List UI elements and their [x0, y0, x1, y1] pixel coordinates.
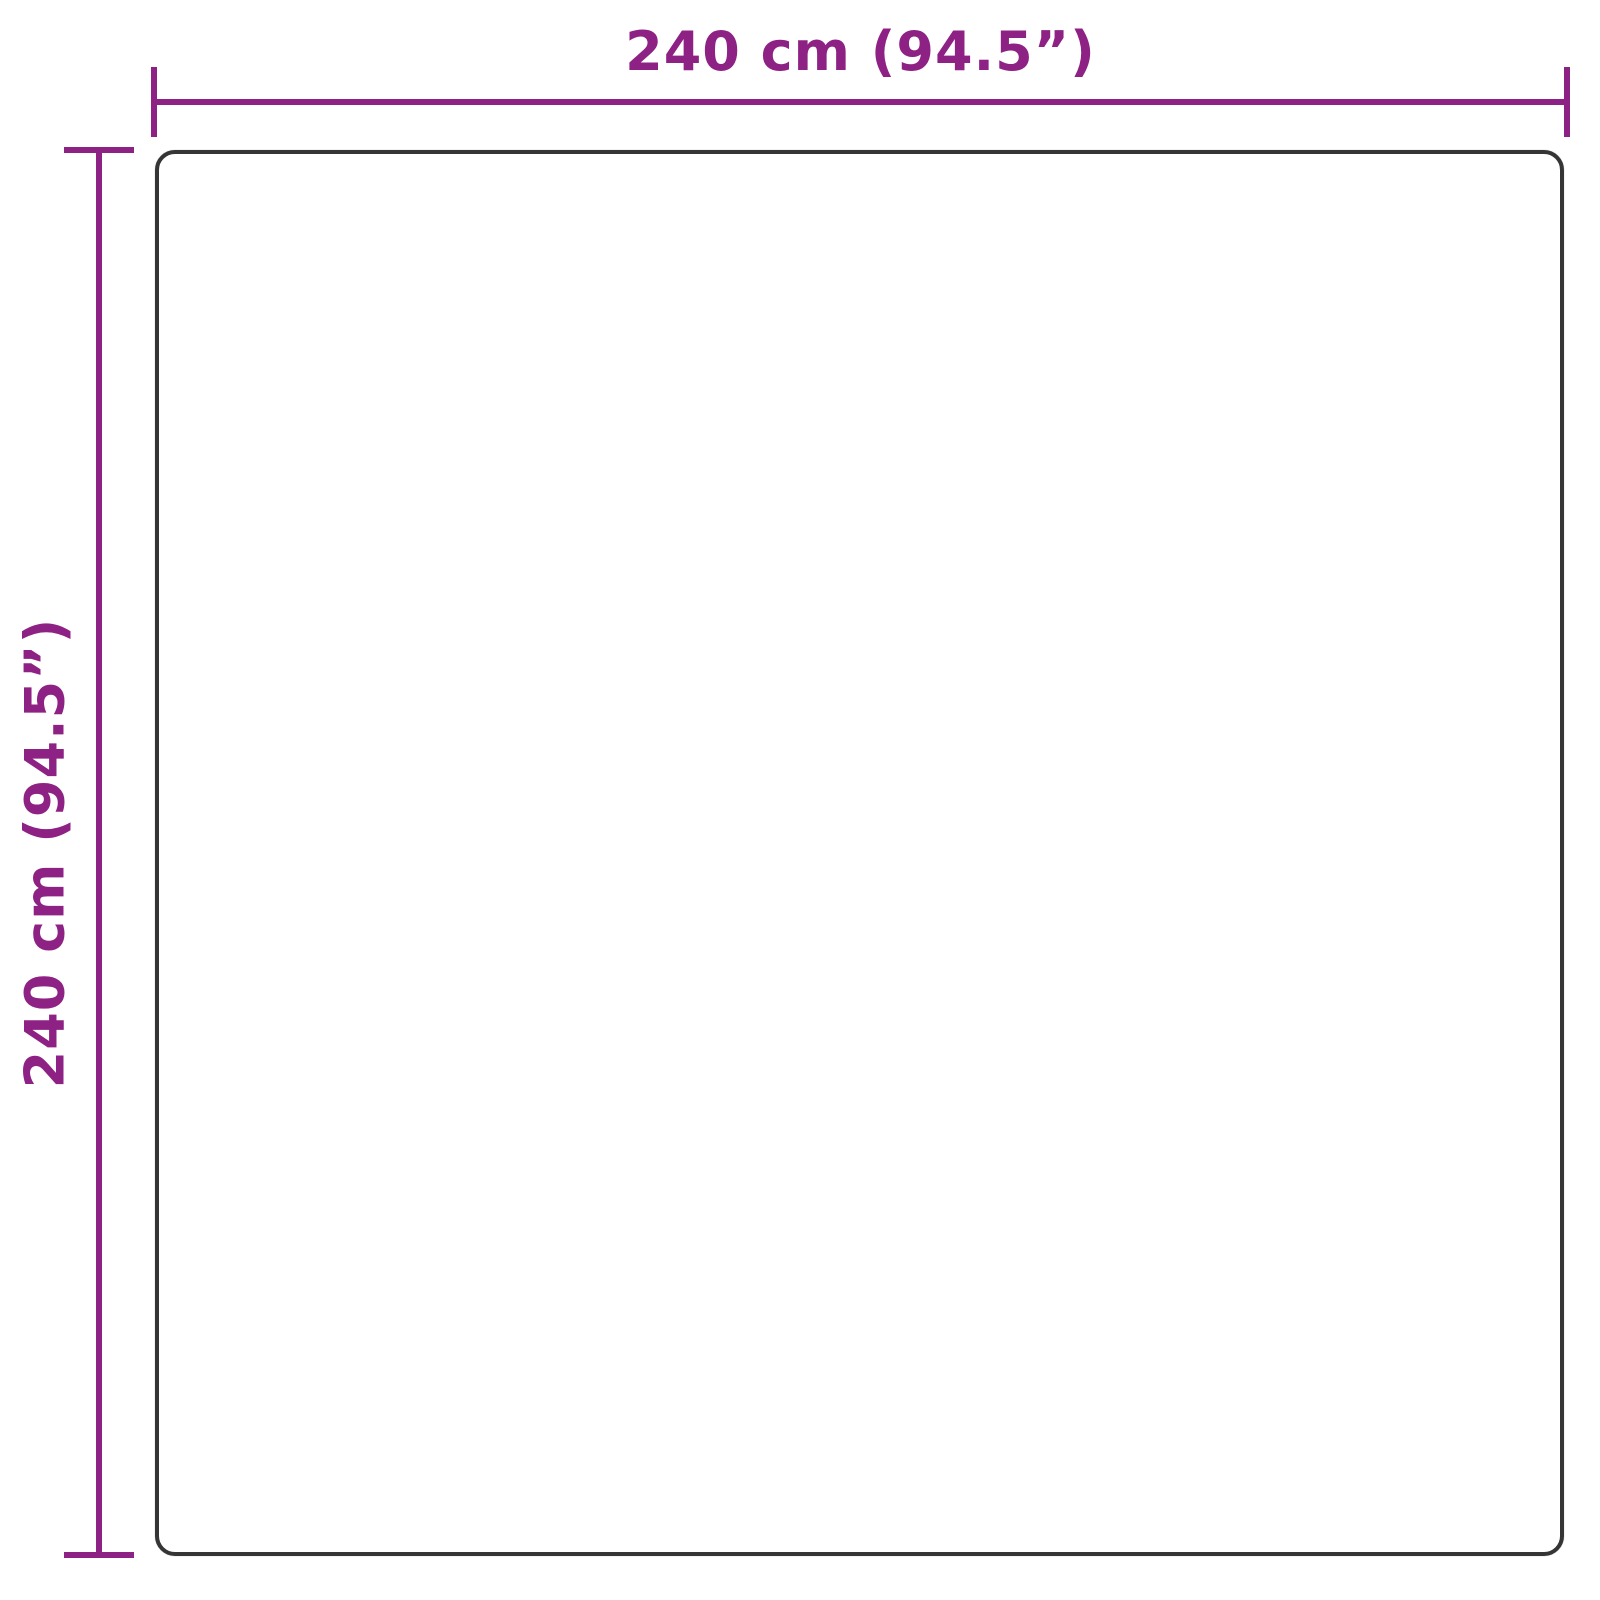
- width-dimension-label: 240 cm (94.5”): [154, 20, 1567, 83]
- height-dimension-label: 240 cm (94.5”): [14, 618, 77, 1089]
- height-dimension-tick-bottom: [64, 1552, 134, 1558]
- dimension-diagram: 240 cm (94.5”) 240 cm (94.5”): [0, 0, 1600, 1600]
- height-dimension-tick-top: [64, 147, 134, 153]
- width-dimension-line: [154, 99, 1567, 105]
- product-outline: [155, 150, 1564, 1556]
- height-dimension-line: [96, 150, 102, 1556]
